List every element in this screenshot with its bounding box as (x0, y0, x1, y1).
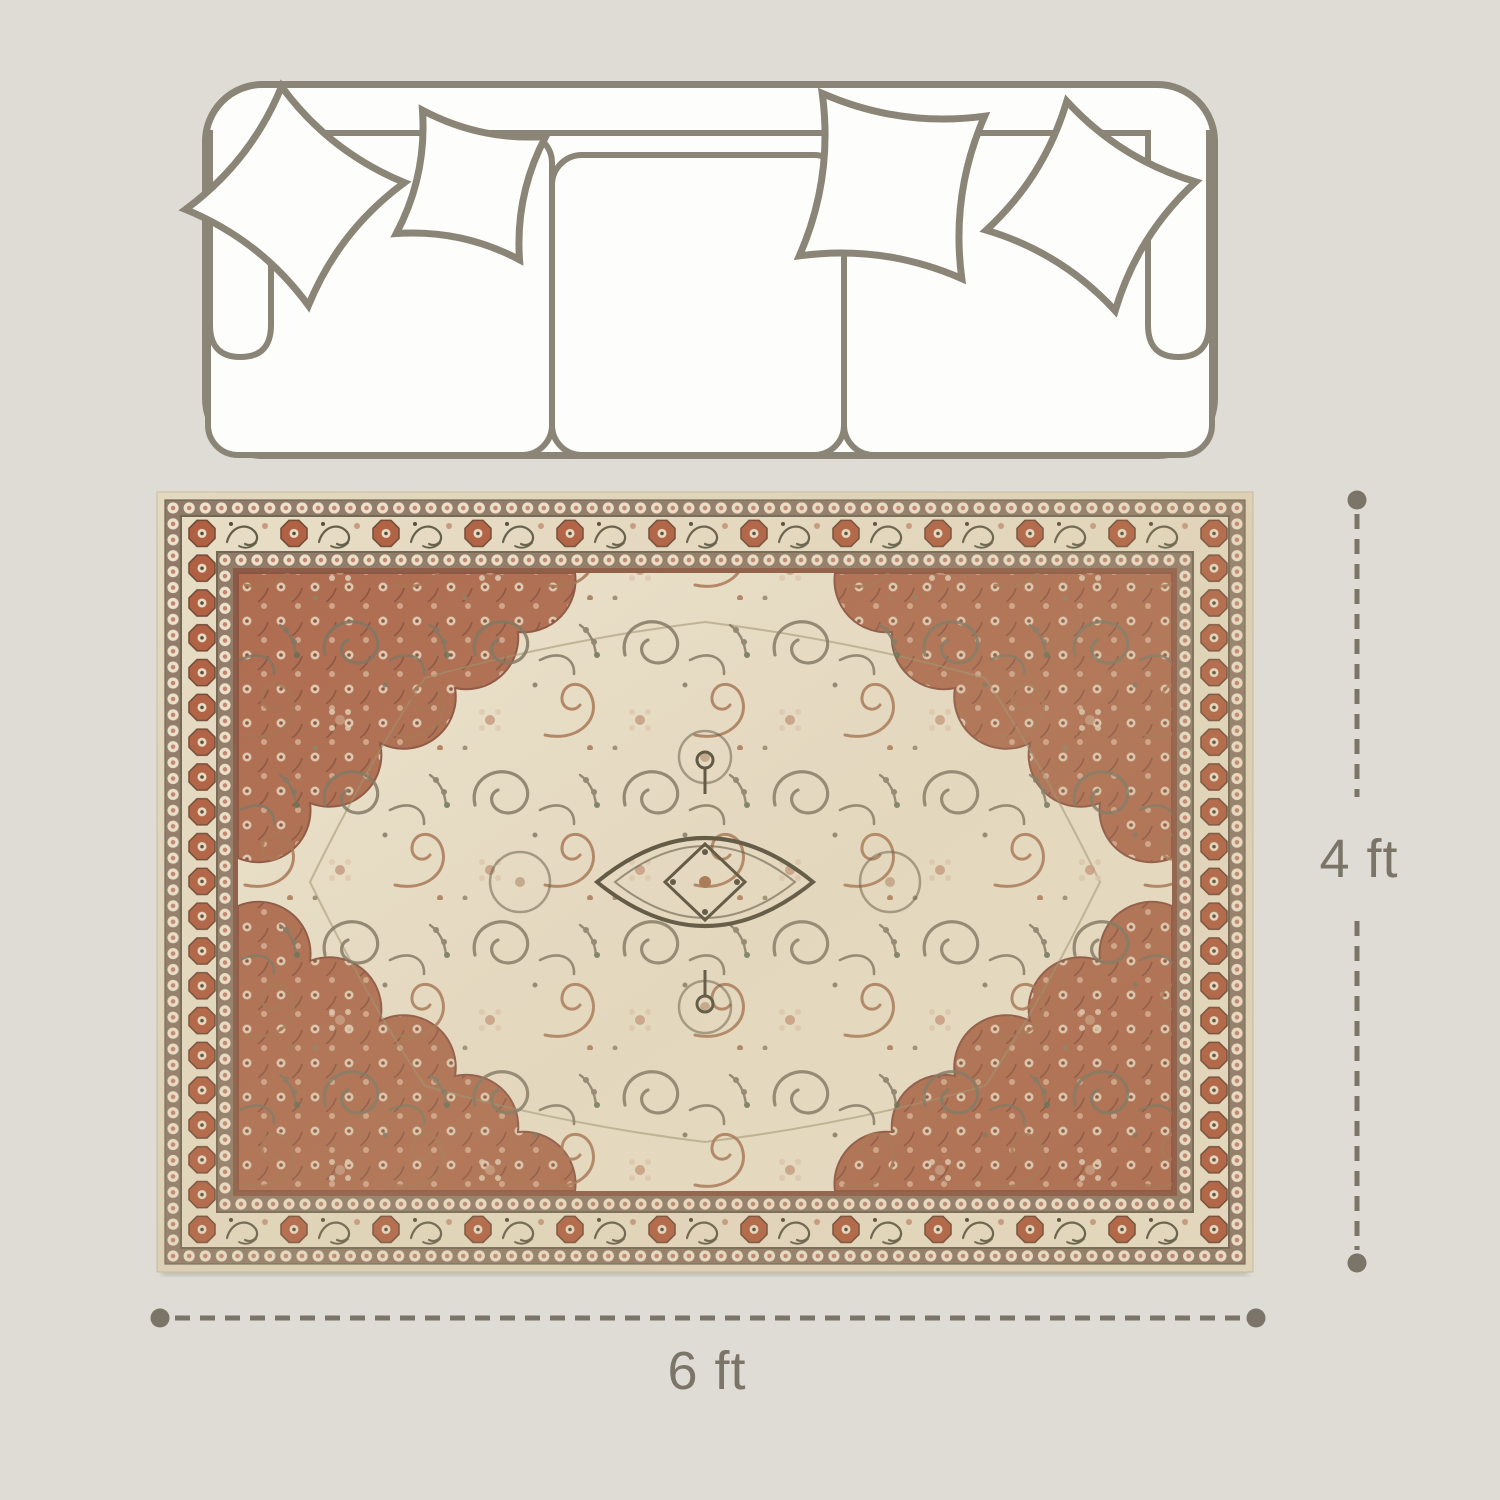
width-dimension-right-dot (1247, 1309, 1266, 1328)
height-dimension: 4 ft (1319, 491, 1398, 1273)
height-dimension-bottom-dot (1348, 1254, 1367, 1273)
width-label: 6 ft (667, 1341, 746, 1401)
product-dimension-diagram: 4 ft 6 ft (0, 0, 1500, 1500)
width-dimension: 6 ft (151, 1309, 1266, 1402)
pillow-icon (799, 93, 984, 278)
height-label: 4 ft (1319, 829, 1398, 889)
rug-and-sofa-diagram: 4 ft 6 ft (0, 0, 1500, 1500)
height-dimension-top-dot (1348, 491, 1367, 510)
rug-vintage-wash (157, 492, 1253, 1272)
sofa-seat-cushion-middle (552, 155, 844, 455)
sofa-icon (186, 85, 1215, 456)
width-dimension-left-dot (151, 1309, 170, 1328)
rug-image (157, 492, 1253, 1276)
